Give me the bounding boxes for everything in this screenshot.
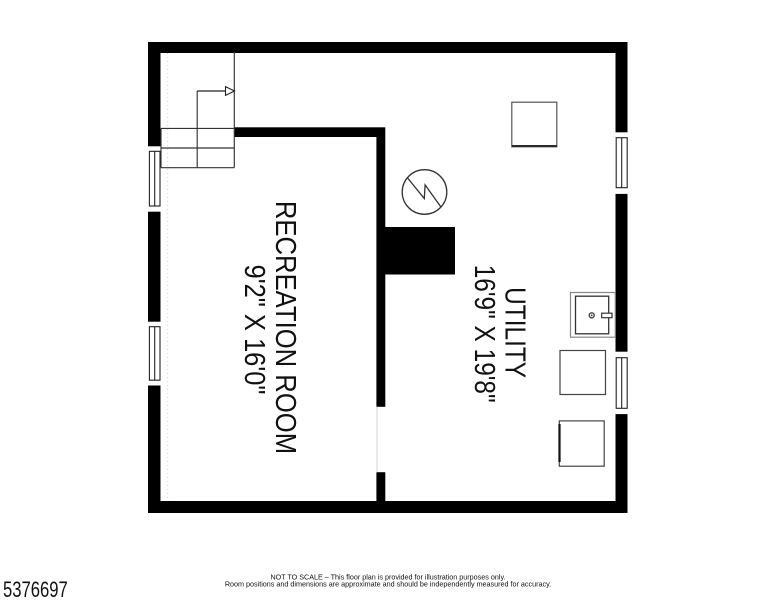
svg-text:16'9" X 19'8": 16'9" X 19'8" — [469, 265, 501, 403]
svg-text:RECREATION ROOM: RECREATION ROOM — [270, 201, 303, 454]
svg-text:9'2" X 16'0": 9'2" X 16'0" — [239, 265, 272, 395]
svg-text:5376697: 5376697 — [3, 578, 68, 600]
svg-text:Room positions and dimensions: Room positions and dimensions are approx… — [225, 579, 551, 588]
svg-text:UTILITY: UTILITY — [499, 287, 531, 378]
